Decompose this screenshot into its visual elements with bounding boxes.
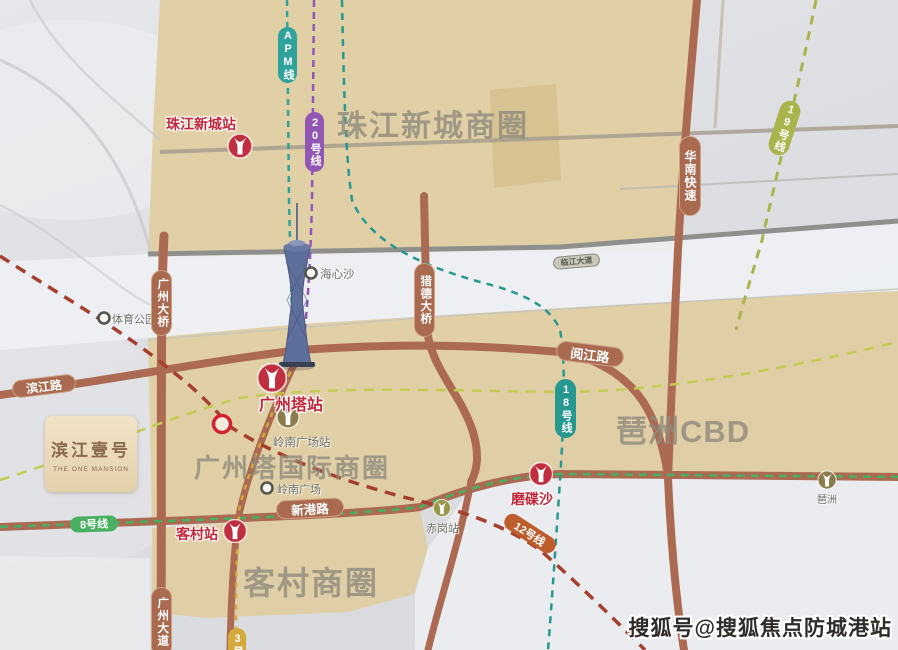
guangzhou-avenue-badge: 广州大道 — [151, 587, 172, 650]
line-18-badge: 18号线 — [555, 379, 576, 438]
project-logo-card: 滨江壹号 THE ONE MANSION — [45, 416, 137, 492]
station-label-pazhou: 琶洲 — [817, 491, 837, 506]
green-metro-stations — [433, 499, 450, 516]
project-name-en: THE ONE MANSION — [53, 466, 129, 473]
haixinsha-ring — [306, 268, 317, 279]
station-label-modiesha: 磨碟沙 — [511, 489, 553, 509]
station-label-zhujiang: 珠江新城站 — [166, 114, 236, 134]
liede-bridge-badge: 猎德大桥 — [414, 263, 435, 337]
project-name-cn: 滨江壹号 — [51, 436, 131, 461]
line-20-badge: 20号线 — [305, 112, 324, 172]
district-label-pazhou: 琶洲CBD — [616, 406, 750, 451]
project-location-marker — [214, 416, 231, 433]
sohu-watermark: 搜狐号@搜狐焦点防城港站 — [629, 612, 892, 642]
apm-line-badge: APM线 — [278, 27, 297, 83]
district-label-zhujiang: 珠江新城商圈 — [337, 101, 529, 145]
station-label-canton-tower: 广州塔站 — [259, 391, 323, 415]
sports-park-ring — [99, 313, 110, 324]
kecun-station-icon — [223, 519, 246, 542]
southwest-area — [0, 556, 150, 650]
modiesha-station-icon — [529, 462, 552, 485]
chigang-station-icon — [433, 499, 450, 516]
xingang-road-badge: 新港路 — [276, 497, 345, 520]
station-label-chigang: 赤岗站 — [426, 520, 459, 536]
station-label-lingnan-square: 岭南广场站 — [273, 434, 331, 450]
line-8-badge: 8号线 — [70, 515, 119, 533]
metro-location-map: 珠江新城商圈 广州塔国际商圈 琶洲CBD 客村商圈 珠江新城站 广州塔站 客村站… — [0, 0, 898, 650]
poi-label-lingnan-square: 岭南广场 — [277, 481, 321, 497]
district-label-canton-tower: 广州塔国际商圈 — [194, 448, 390, 485]
poi-label-haixinsha: 海心沙 — [320, 266, 355, 282]
station-label-kecun: 客村站 — [176, 524, 218, 544]
pazhou-station-icon — [818, 471, 836, 489]
huanan-express-badge: 华南快速 — [679, 136, 701, 216]
poi-label-sports-park: 体育公园 — [112, 311, 156, 327]
zhujiang-new-town-station-icon — [228, 134, 252, 158]
district-label-kecun: 客村商圈 — [243, 558, 379, 604]
guangzhou-bridge-badge: 广州大桥 — [151, 270, 172, 336]
canton-tower-station-icon — [258, 364, 287, 393]
minor-road — [715, 0, 723, 128]
line-3-badge: 3号线 — [228, 628, 246, 650]
